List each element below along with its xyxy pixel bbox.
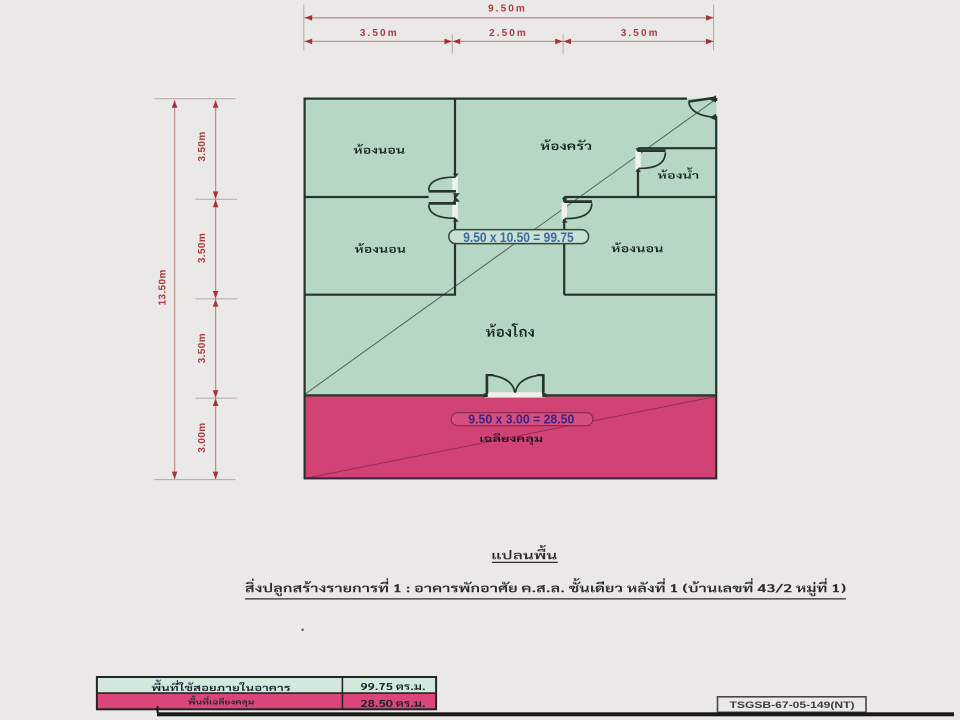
svg-text:3.00m: 3.00m (197, 422, 208, 452)
svg-text:9.50 x 10.50 = 99.75: 9.50 x 10.50 = 99.75 (463, 230, 574, 245)
svg-text:3.50m: 3.50m (621, 28, 660, 39)
svg-text:9.50 x 3.00 = 28.50: 9.50 x 3.00 = 28.50 (468, 412, 574, 426)
svg-text:13.50m: 13.50m (157, 269, 168, 305)
svg-text:3.50m: 3.50m (197, 131, 208, 161)
svg-text:3.50m: 3.50m (197, 233, 208, 263)
svg-text:TSGSB-67-05-149(NT): TSGSB-67-05-149(NT) (730, 700, 855, 711)
svg-text:3.50m: 3.50m (197, 333, 208, 363)
svg-text:2.50m: 2.50m (489, 28, 528, 39)
svg-text:3.50m: 3.50m (360, 28, 399, 39)
svg-text:9.50m: 9.50m (488, 4, 527, 15)
